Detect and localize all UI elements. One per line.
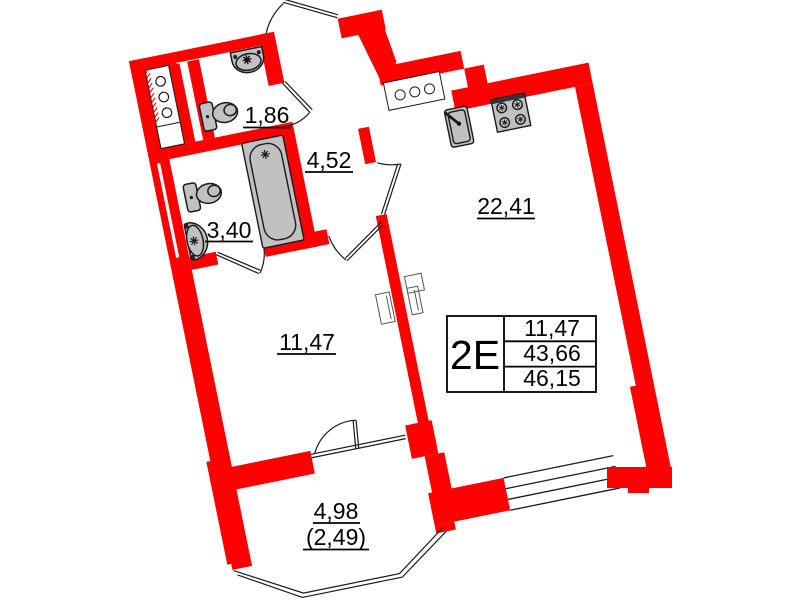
- svg-text:43,66: 43,66: [523, 340, 581, 366]
- svg-text:11,47: 11,47: [524, 315, 580, 341]
- svg-text:4,98: 4,98: [314, 498, 359, 524]
- svg-text:4,52: 4,52: [307, 147, 352, 173]
- svg-text:22,41: 22,41: [477, 193, 535, 219]
- svg-text:(2,49): (2,49): [306, 524, 366, 550]
- svg-text:2Е: 2Е: [450, 332, 500, 378]
- svg-text:46,15: 46,15: [523, 365, 581, 391]
- svg-text:1,86: 1,86: [245, 102, 290, 128]
- svg-text:3,40: 3,40: [207, 217, 252, 243]
- svg-text:11,47: 11,47: [279, 329, 335, 355]
